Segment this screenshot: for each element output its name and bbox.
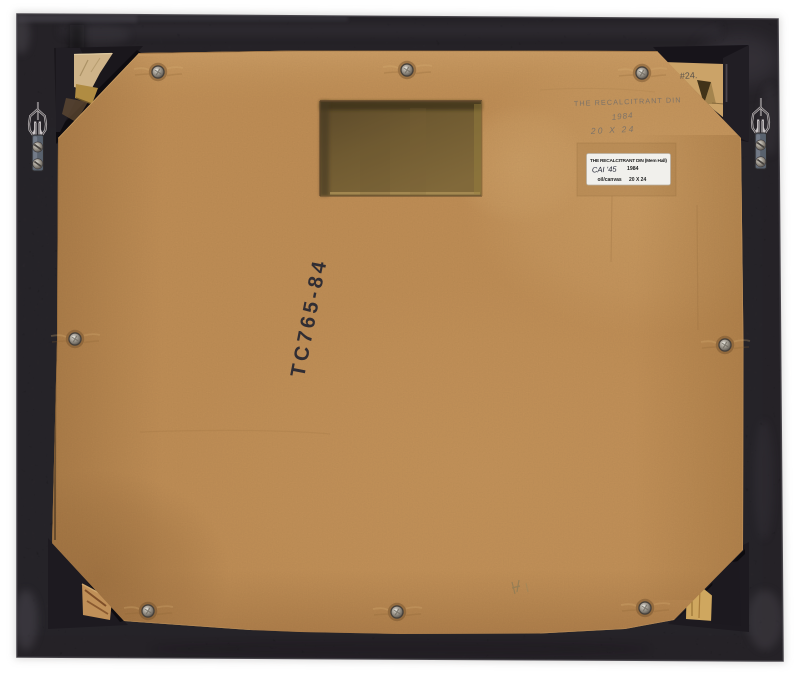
svg-text:oil/canvas: oil/canvas <box>598 177 622 183</box>
svg-text:1984: 1984 <box>627 166 639 172</box>
svg-text:20 X 24: 20 X 24 <box>629 177 646 183</box>
svg-text:CAI '45: CAI '45 <box>592 165 618 175</box>
svg-text:#24.: #24. <box>680 70 698 81</box>
svg-text:THE RECALCITRANT DIN (Mem Hall: THE RECALCITRANT DIN (Mem Hall) <box>590 158 667 164</box>
